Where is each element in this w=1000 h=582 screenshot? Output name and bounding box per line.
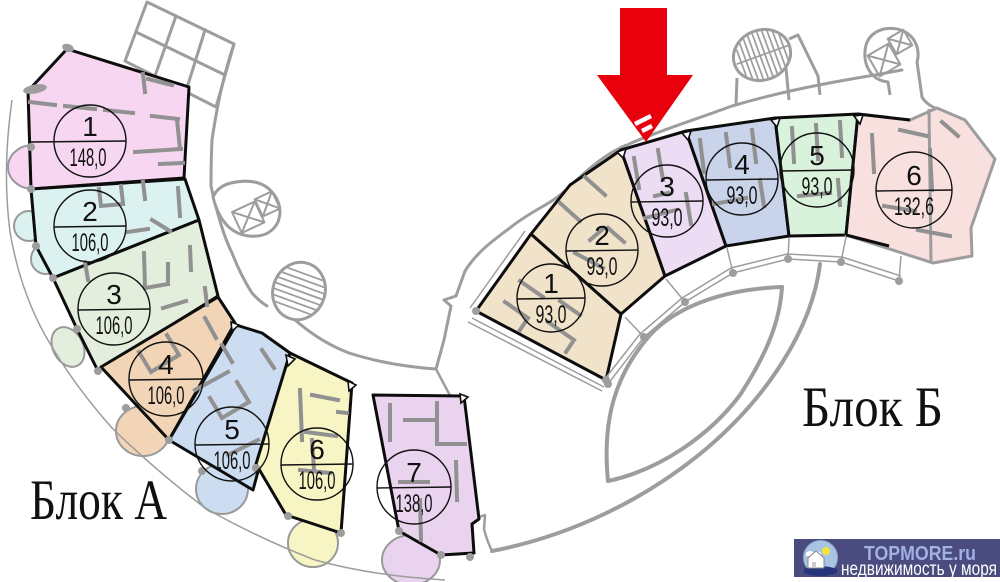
svg-text:148,0: 148,0 xyxy=(70,144,107,172)
svg-text:5: 5 xyxy=(809,140,825,171)
svg-text:132,6: 132,6 xyxy=(894,193,934,221)
svg-text:3: 3 xyxy=(659,171,675,202)
svg-text:93,0: 93,0 xyxy=(652,204,683,232)
svg-text:недвижимость у моря: недвижимость у моря xyxy=(841,559,997,580)
svg-text:4: 4 xyxy=(734,149,750,180)
svg-text:106,0: 106,0 xyxy=(72,229,109,257)
svg-text:7: 7 xyxy=(406,457,422,488)
svg-text:5: 5 xyxy=(224,414,240,445)
svg-text:138,0: 138,0 xyxy=(396,490,433,518)
svg-text:2: 2 xyxy=(82,196,98,227)
svg-text:106,0: 106,0 xyxy=(96,312,133,340)
svg-text:106,0: 106,0 xyxy=(299,467,336,495)
svg-text:1: 1 xyxy=(82,111,98,142)
svg-text:1: 1 xyxy=(543,268,559,299)
svg-text:2: 2 xyxy=(594,220,610,251)
svg-text:93,0: 93,0 xyxy=(536,301,567,329)
svg-text:106,0: 106,0 xyxy=(148,382,185,410)
svg-text:6: 6 xyxy=(906,160,922,191)
svg-text:4: 4 xyxy=(158,349,174,380)
svg-text:93,0: 93,0 xyxy=(802,173,833,201)
svg-text:3: 3 xyxy=(106,279,122,310)
svg-text:Блок Б: Блок Б xyxy=(802,376,943,439)
svg-text:106,0: 106,0 xyxy=(214,447,251,475)
svg-text:93,0: 93,0 xyxy=(727,182,758,210)
svg-text:93,0: 93,0 xyxy=(587,253,618,281)
svg-text:Блок А: Блок А xyxy=(30,469,167,532)
svg-text:6: 6 xyxy=(309,434,325,465)
